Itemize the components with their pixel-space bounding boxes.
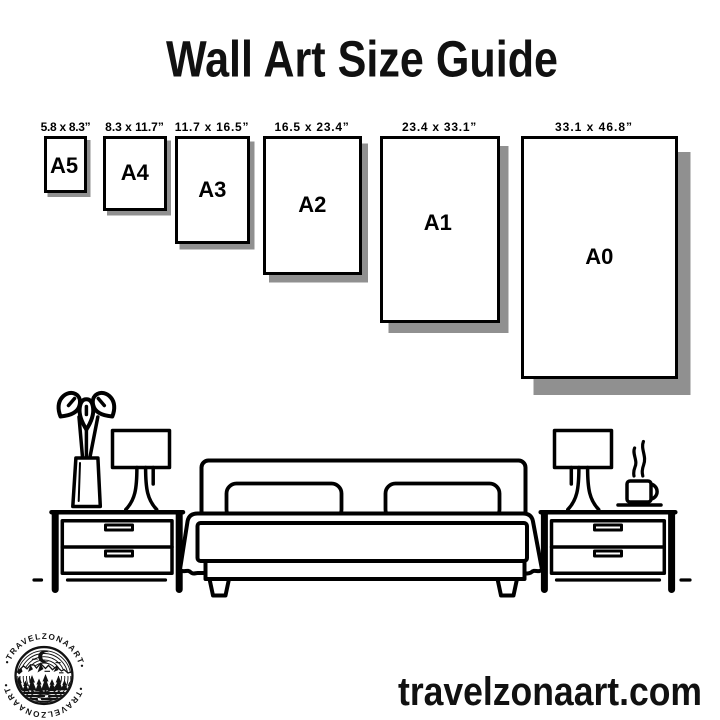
svg-text:travelzonaart.com: travelzonaart.com xyxy=(398,670,702,714)
svg-text:Wall Art Size Guide: Wall Art Size Guide xyxy=(166,31,558,88)
